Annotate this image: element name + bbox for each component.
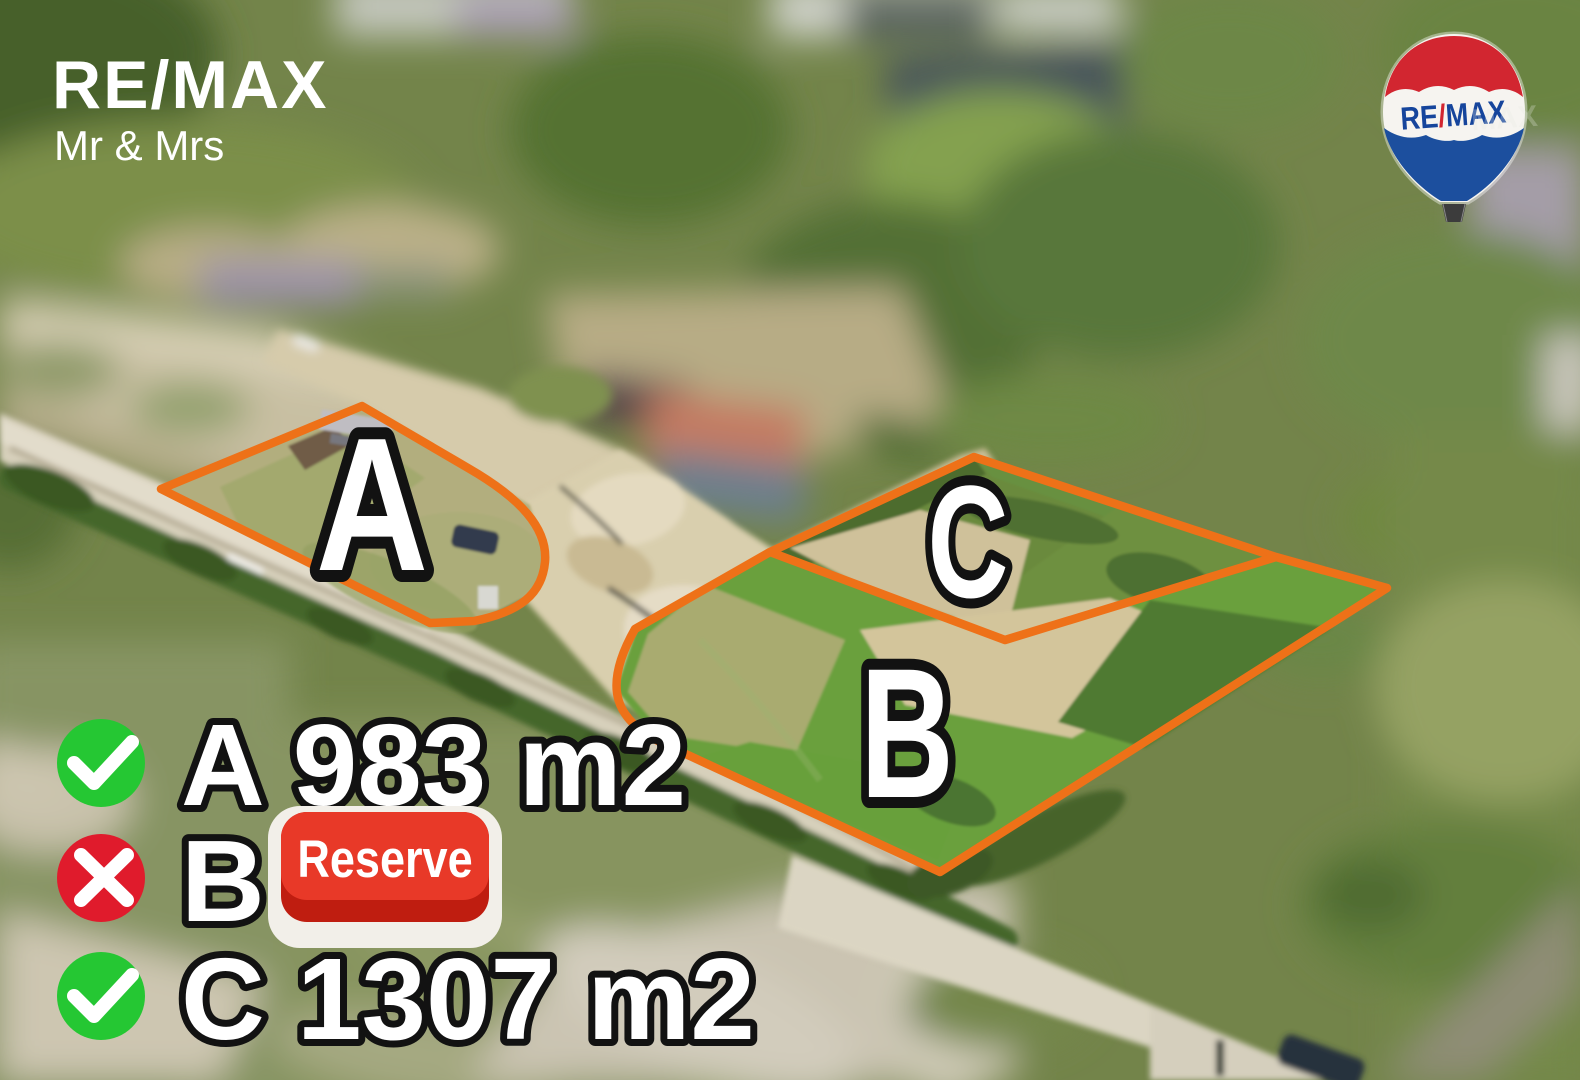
svg-text:C 1307 m2: C 1307 m2 xyxy=(181,934,755,1064)
svg-text:Mr & Mrs: Mr & Mrs xyxy=(54,122,224,169)
svg-text:B: B xyxy=(860,629,954,836)
svg-text:A: A xyxy=(316,398,429,610)
svg-text:Reserve: Reserve xyxy=(297,830,472,889)
svg-text:B: B xyxy=(181,816,265,946)
svg-text:MAX: MAX xyxy=(1470,100,1539,138)
svg-text:RE/MAX: RE/MAX xyxy=(52,47,328,123)
svg-text:C: C xyxy=(928,453,1009,631)
